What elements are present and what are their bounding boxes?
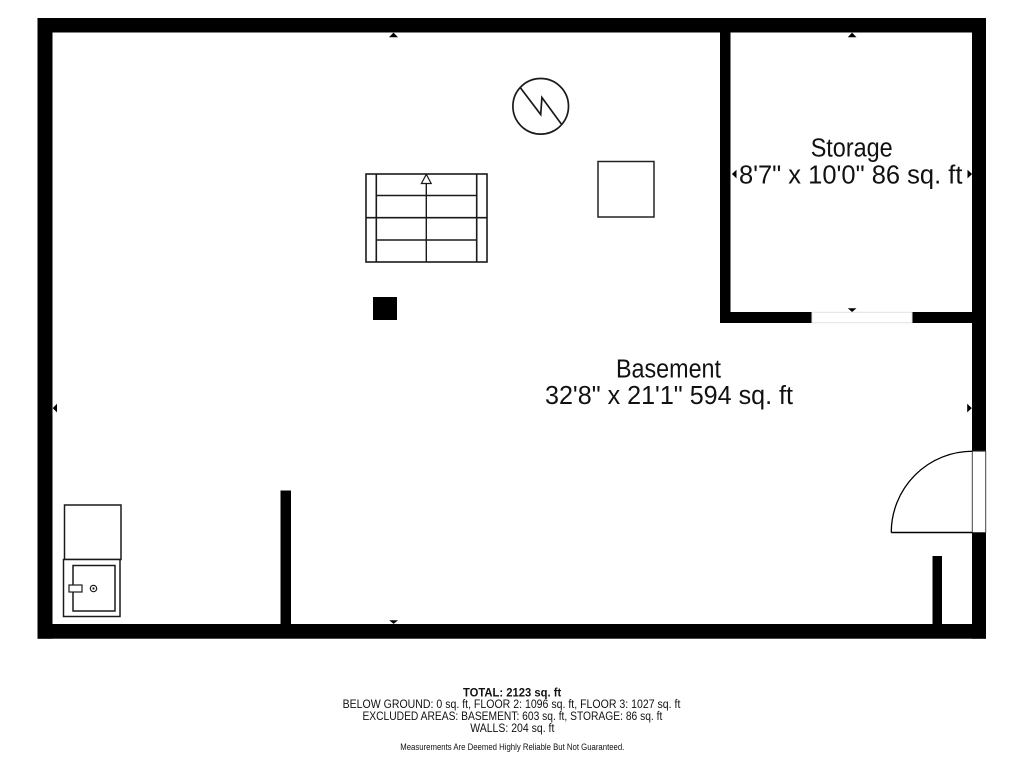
- svg-text:8'7" x 10'0" 86 sq. ft: 8'7" x 10'0" 86 sq. ft: [739, 161, 963, 189]
- svg-text:WALLS: 204 sq. ft: WALLS: 204 sq. ft: [470, 723, 555, 735]
- svg-text:Basement: Basement: [616, 355, 721, 383]
- svg-text:EXCLUDED AREAS: BASEMENT: 603: EXCLUDED AREAS: BASEMENT: 603 sq. ft, ST…: [362, 711, 663, 723]
- svg-text:TOTAL: 2123 sq. ft: TOTAL: 2123 sq. ft: [463, 687, 561, 699]
- svg-text:Measurements Are Deemed Highly: Measurements Are Deemed Highly Reliable …: [400, 742, 624, 752]
- svg-text:32'8" x 21'1" 594 sq. ft: 32'8" x 21'1" 594 sq. ft: [545, 382, 793, 410]
- svg-text:Storage: Storage: [811, 135, 893, 163]
- svg-text:BELOW GROUND: 0 sq. ft, FLOOR: BELOW GROUND: 0 sq. ft, FLOOR 2: 1096 sq…: [343, 699, 682, 711]
